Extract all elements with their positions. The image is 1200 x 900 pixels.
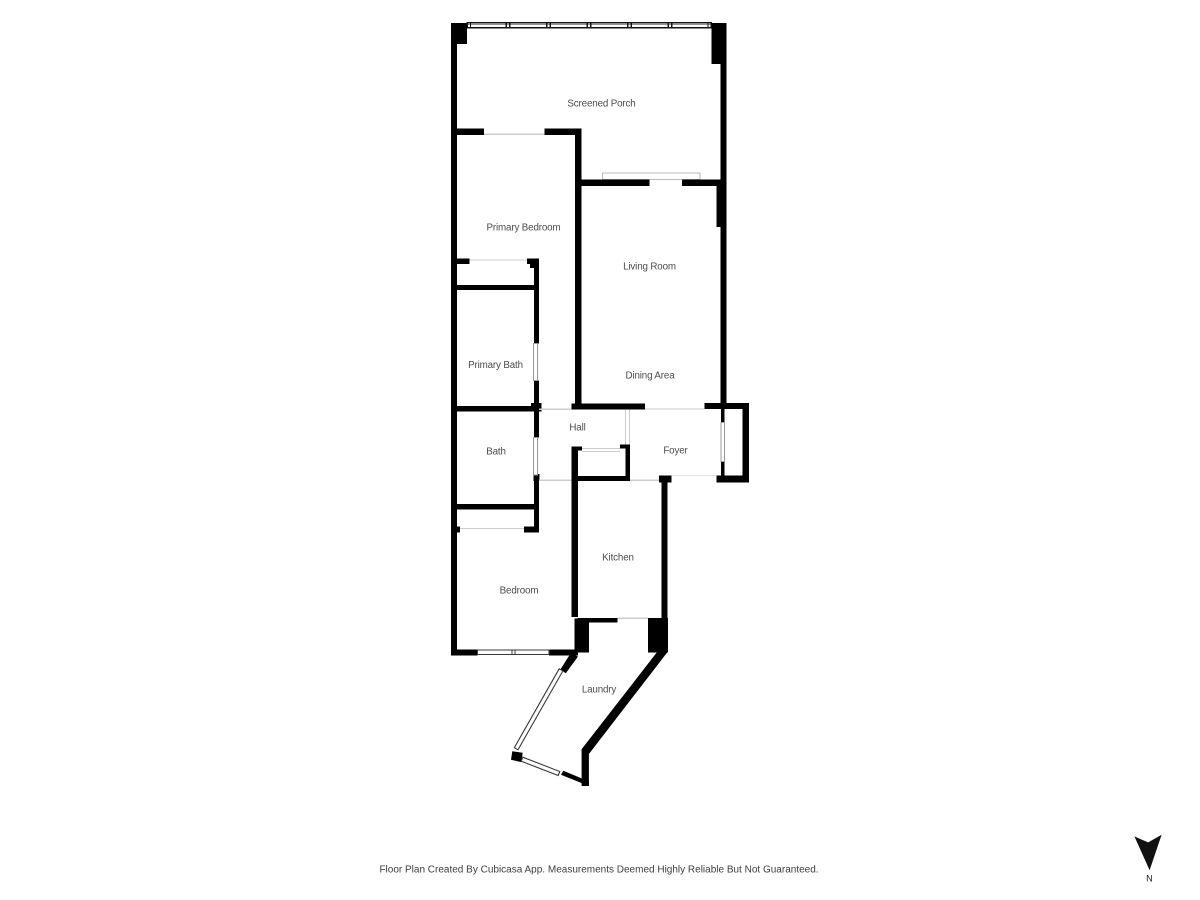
svg-text:Laundry: Laundry <box>582 685 617 696</box>
svg-text:Foyer: Foyer <box>663 446 688 457</box>
svg-text:Primary Bath: Primary Bath <box>468 360 523 371</box>
svg-text:Hall: Hall <box>569 423 585 434</box>
svg-text:Bedroom: Bedroom <box>500 585 539 596</box>
svg-text:Kitchen: Kitchen <box>602 553 634 564</box>
svg-text:Floor Plan Created By Cubicasa: Floor Plan Created By Cubicasa App. Meas… <box>379 865 818 876</box>
svg-text:Screened Porch: Screened Porch <box>567 99 635 110</box>
svg-text:Living Room: Living Room <box>623 261 676 272</box>
svg-text:Dining Area: Dining Area <box>626 371 676 382</box>
svg-text:Bath: Bath <box>486 447 506 458</box>
svg-text:N: N <box>1146 874 1153 884</box>
svg-text:Primary Bedroom: Primary Bedroom <box>487 223 561 234</box>
